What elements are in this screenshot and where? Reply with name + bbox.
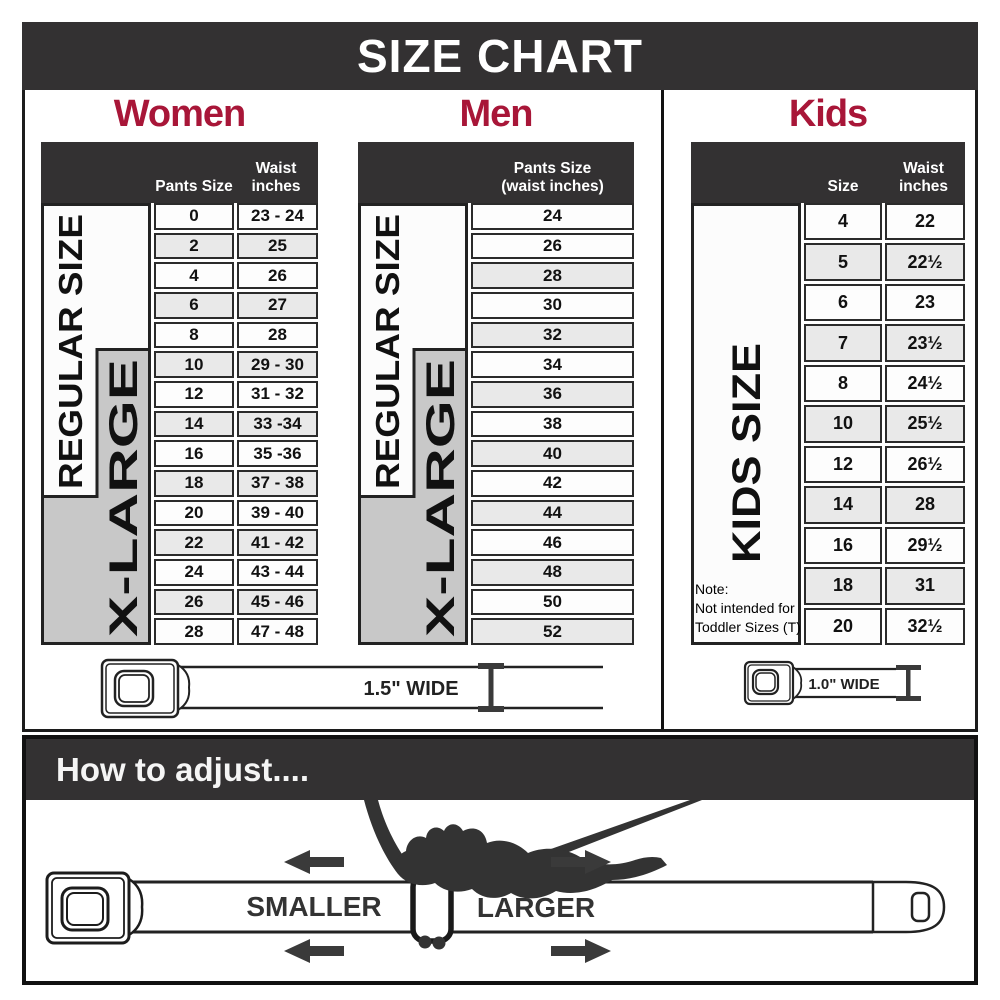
table-row: 2443 - 44	[154, 559, 318, 586]
table-row: 50	[471, 589, 634, 616]
table-row: 723½	[804, 324, 965, 361]
women-size-table: Pants Size Waist inches REGULAR SIZE X-L…	[41, 142, 318, 645]
table-row: 1029 - 30	[154, 351, 318, 378]
table-row: 1837 - 38	[154, 470, 318, 497]
arrow-left-icon	[284, 939, 344, 963]
kids-note: Note: Not intended for Toddler Sizes (T)	[695, 580, 801, 637]
waist-cell: 33 -34	[237, 411, 318, 438]
table-row: 2241 - 42	[154, 529, 318, 556]
kids-width-label: 1.0" WIDE	[808, 676, 879, 693]
women-heading: Women	[41, 93, 318, 136]
size-cell: 4	[804, 203, 882, 240]
waist-inches-header: Waist inches	[234, 160, 318, 196]
size-cell: 14	[804, 486, 882, 523]
table-row: 1635 -36	[154, 440, 318, 467]
value-cell: 50	[471, 589, 634, 616]
waist-cell: 23	[885, 284, 965, 321]
size-cell: 14	[154, 411, 234, 438]
table-row: 1025½	[804, 405, 965, 442]
waist-cell: 29½	[885, 527, 965, 564]
men-size-table: Pants Size (waist inches) REGULAR SIZE X…	[358, 142, 634, 645]
size-cell: 26	[154, 589, 234, 616]
men-rows: 242628303234363840424446485052	[471, 203, 634, 645]
size-cell: 24	[154, 559, 234, 586]
adult-belt-illustration: 1.5" WIDE	[93, 655, 613, 720]
size-cell: 16	[804, 527, 882, 564]
note-line2: Not intended for	[695, 599, 801, 618]
table-row: 24	[471, 203, 634, 230]
kids-size-label: KIDS SIZE	[725, 343, 769, 563]
value-cell: 28	[471, 262, 634, 289]
note-line3: Toddler Sizes (T)	[695, 618, 801, 637]
note-line1: Note:	[695, 580, 801, 599]
arrow-left-icon	[284, 850, 344, 874]
table-row: 30	[471, 292, 634, 319]
size-cell: 7	[804, 324, 882, 361]
women-table-header: Pants Size Waist inches	[41, 142, 318, 203]
kids-rows: 422522½623723½824½1025½1226½14281629½183…	[804, 203, 965, 645]
men-header-line1: Pants Size	[471, 160, 634, 178]
table-row: 225	[154, 233, 318, 260]
size-cell: 28	[154, 618, 234, 645]
kids-heading: Kids	[691, 93, 965, 136]
value-cell: 32	[471, 322, 634, 349]
waist-cell: 28	[237, 322, 318, 349]
waist-cell: 22	[885, 203, 965, 240]
size-cell: 2	[154, 233, 234, 260]
size-cell: 18	[154, 470, 234, 497]
table-row: 2032½	[804, 608, 965, 645]
waist-header-line1: Waist	[234, 160, 318, 178]
kids-table-header: Size Waist inches	[691, 142, 965, 203]
table-row: 426	[154, 262, 318, 289]
table-row: 32	[471, 322, 634, 349]
size-chart-page: SIZE CHART Women Pants Size Waist inches…	[0, 0, 1000, 1000]
waist-cell: 22½	[885, 243, 965, 280]
value-cell: 40	[471, 440, 634, 467]
value-cell: 36	[471, 381, 634, 408]
kids-table-body: KIDS SIZE Note: Not intended for Toddler…	[691, 203, 965, 645]
size-cell: 20	[154, 500, 234, 527]
width-measure-icon	[896, 665, 921, 701]
waist-cell: 25½	[885, 405, 965, 442]
table-row: 46	[471, 529, 634, 556]
waist-header-line2: inches	[882, 178, 965, 196]
waist-cell: 37 - 38	[237, 470, 318, 497]
table-row: 2847 - 48	[154, 618, 318, 645]
waist-cell: 27	[237, 292, 318, 319]
fingertip	[419, 936, 432, 949]
kids-size-range-labels: KIDS SIZE	[691, 203, 801, 645]
value-cell: 46	[471, 529, 634, 556]
pants-size-header: Pants Size	[154, 178, 234, 196]
table-row: 1428	[804, 486, 965, 523]
size-cell: 4	[154, 262, 234, 289]
table-row: 023 - 24	[154, 203, 318, 230]
belt-tip	[873, 882, 944, 932]
table-row: 1629½	[804, 527, 965, 564]
men-table-header: Pants Size (waist inches)	[358, 142, 634, 203]
value-cell: 44	[471, 500, 634, 527]
size-cell: 6	[154, 292, 234, 319]
table-row: 1231 - 32	[154, 381, 318, 408]
table-row: 422	[804, 203, 965, 240]
waist-inches-header: Waist inches	[882, 160, 965, 196]
table-row: 623	[804, 284, 965, 321]
table-row: 2039 - 40	[154, 500, 318, 527]
kids-size-table: Size Waist inches KIDS SIZE Note: Not in…	[691, 142, 965, 645]
table-row: 627	[154, 292, 318, 319]
table-row: 44	[471, 500, 634, 527]
arrow-right-icon	[551, 939, 611, 963]
fingertip	[433, 937, 446, 950]
size-cell: 8	[154, 322, 234, 349]
waist-cell: 31 - 32	[237, 381, 318, 408]
size-cell: 5	[804, 243, 882, 280]
regular-size-label: REGULAR SIZE	[369, 214, 406, 489]
table-row: 40	[471, 440, 634, 467]
value-cell: 34	[471, 351, 634, 378]
waist-cell: 25	[237, 233, 318, 260]
men-size-range-labels: REGULAR SIZE X-LARGE	[358, 203, 468, 645]
men-table-body: REGULAR SIZE X-LARGE 2426283032343638404…	[358, 203, 634, 645]
size-cell: 22	[154, 529, 234, 556]
value-cell: 48	[471, 559, 634, 586]
waist-cell: 31	[885, 567, 965, 604]
table-row: 28	[471, 262, 634, 289]
larger-label: LARGER	[477, 892, 595, 923]
size-cell: 0	[154, 203, 234, 230]
belt-tip-slot	[912, 893, 929, 921]
waist-header-line2: inches	[234, 178, 318, 196]
table-row: 26	[471, 233, 634, 260]
how-to-adjust-heading: How to adjust....	[26, 739, 974, 800]
table-row: 42	[471, 470, 634, 497]
smaller-label: SMALLER	[246, 891, 381, 922]
table-row: 52	[471, 618, 634, 645]
waist-cell: 29 - 30	[237, 351, 318, 378]
value-cell: 26	[471, 233, 634, 260]
waist-cell: 26½	[885, 446, 965, 483]
table-row: 1433 -34	[154, 411, 318, 438]
size-cell: 8	[804, 365, 882, 402]
men-header-line2: (waist inches)	[471, 178, 634, 196]
pants-size-waist-header: Pants Size (waist inches)	[471, 160, 634, 196]
table-row: 36	[471, 381, 634, 408]
xlarge-label: X-LARGE	[102, 359, 146, 637]
value-cell: 42	[471, 470, 634, 497]
waist-cell: 43 - 44	[237, 559, 318, 586]
page-title: SIZE CHART	[22, 22, 978, 90]
waist-cell: 26	[237, 262, 318, 289]
table-row: 522½	[804, 243, 965, 280]
xlarge-label: X-LARGE	[419, 359, 463, 637]
adjust-illustration-area: SMALLER LARGER	[26, 800, 974, 981]
women-size-range-labels: REGULAR SIZE X-LARGE	[41, 203, 151, 645]
waist-cell: 32½	[885, 608, 965, 645]
size-cell: 6	[804, 284, 882, 321]
value-cell: 30	[471, 292, 634, 319]
size-chart-body: Women Pants Size Waist inches REGULAR SI…	[22, 90, 978, 732]
size-cell: 12	[154, 381, 234, 408]
men-heading: Men	[358, 93, 634, 136]
regular-size-label: REGULAR SIZE	[52, 214, 89, 489]
table-row: 824½	[804, 365, 965, 402]
waist-header-line1: Waist	[882, 160, 965, 178]
waist-cell: 23 - 24	[237, 203, 318, 230]
table-row: 828	[154, 322, 318, 349]
adjust-belt-illustration: SMALLER LARGER	[28, 800, 972, 978]
waist-cell: 47 - 48	[237, 618, 318, 645]
size-cell: 18	[804, 567, 882, 604]
size-cell: 20	[804, 608, 882, 645]
value-cell: 38	[471, 411, 634, 438]
size-cell: 16	[154, 440, 234, 467]
size-cell: 10	[154, 351, 234, 378]
waist-cell: 28	[885, 486, 965, 523]
value-cell: 24	[471, 203, 634, 230]
waist-cell: 35 -36	[237, 440, 318, 467]
women-table-body: REGULAR SIZE X-LARGE 023 - 2422542662782…	[41, 203, 318, 645]
waist-cell: 24½	[885, 365, 965, 402]
waist-cell: 23½	[885, 324, 965, 361]
adult-width-label: 1.5" WIDE	[363, 678, 458, 700]
section-divider	[661, 90, 664, 729]
table-row: 38	[471, 411, 634, 438]
size-cell: 12	[804, 446, 882, 483]
table-row: 1831	[804, 567, 965, 604]
size-header: Size	[804, 178, 882, 196]
table-row: 1226½	[804, 446, 965, 483]
table-row: 48	[471, 559, 634, 586]
value-cell: 52	[471, 618, 634, 645]
table-row: 34	[471, 351, 634, 378]
table-row: 2645 - 46	[154, 589, 318, 616]
size-cell: 10	[804, 405, 882, 442]
waist-cell: 45 - 46	[237, 589, 318, 616]
how-to-adjust-section: How to adjust....	[22, 735, 978, 985]
waist-cell: 41 - 42	[237, 529, 318, 556]
kids-belt-illustration: 1.0" WIDE	[738, 658, 933, 710]
waist-cell: 39 - 40	[237, 500, 318, 527]
women-rows: 023 - 242254266278281029 - 301231 - 3214…	[154, 203, 318, 645]
